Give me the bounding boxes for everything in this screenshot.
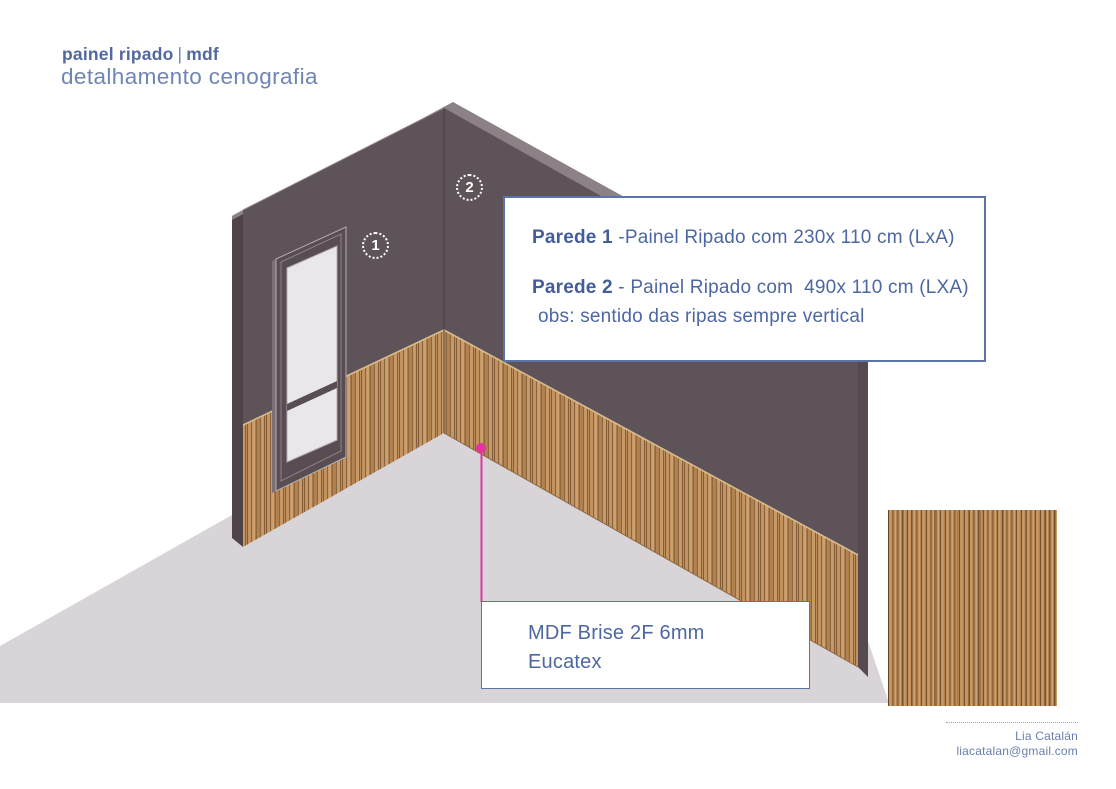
spec-parede1-label: Parede 1 <box>532 227 613 248</box>
material-line2: Eucatex <box>528 651 602 674</box>
page-title-part1: painel ripado <box>62 44 174 64</box>
page-title: painel ripado|mdf <box>62 44 219 65</box>
page-title-part2: mdf <box>186 44 219 64</box>
wall2-marker-badge: 2 <box>456 174 483 201</box>
window-glass <box>287 246 337 462</box>
spec-parede2-text: - Painel Ripado com 490x 110 cm (LXA) <box>613 277 969 298</box>
detail-sheet: painel ripado|mdf detalhamento cenografi… <box>0 0 1116 789</box>
material-callout-box: MDF Brise 2F 6mm Eucatex <box>481 601 810 689</box>
wall1-side-edge <box>232 210 243 547</box>
wood-sample-swatch <box>888 510 1057 706</box>
wall1-marker-label: 1 <box>371 237 379 254</box>
window <box>272 227 346 493</box>
wall1-marker-badge: 1 <box>362 232 389 259</box>
window-frame-reveal <box>272 259 276 493</box>
wall2-marker-label: 2 <box>465 179 473 196</box>
material-line1: MDF Brise 2F 6mm <box>528 622 705 645</box>
spec-callout-box: Parede 1 -Painel Ripado com 230x 110 cm … <box>503 196 986 362</box>
page-title-separator: | <box>174 44 187 64</box>
spec-parede1-text: -Painel Ripado com 230x 110 cm (LxA) <box>613 227 955 248</box>
credits-email: liacatalan@gmail.com <box>946 744 1078 759</box>
spec-line-parede2: Parede 2 - Painel Ripado com 490x 110 cm… <box>532 277 969 299</box>
page-subtitle: detalhamento cenografia <box>61 64 318 90</box>
credits-block: Lia Catalán liacatalan@gmail.com <box>946 722 1078 759</box>
spec-note: obs: sentido das ripas sempre vertical <box>538 306 865 328</box>
credits-name: Lia Catalán <box>946 729 1078 744</box>
spec-line-parede1: Parede 1 -Painel Ripado com 230x 110 cm … <box>532 227 955 249</box>
spec-parede2-label: Parede 2 <box>532 277 613 298</box>
wall2-side-edge <box>858 340 868 677</box>
